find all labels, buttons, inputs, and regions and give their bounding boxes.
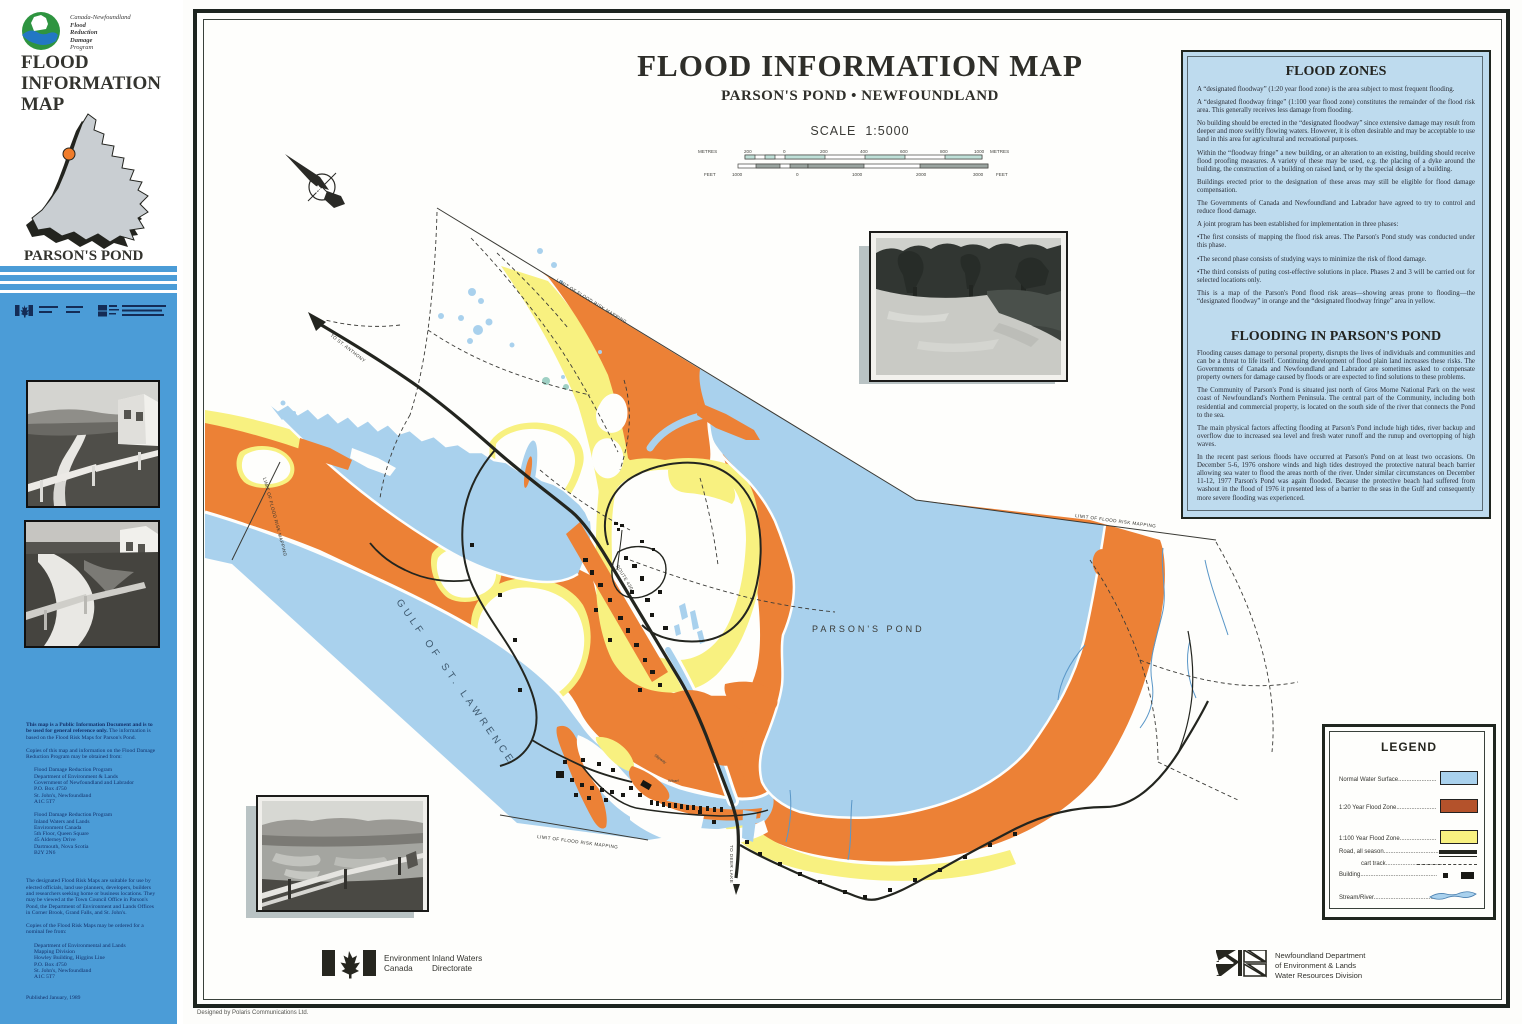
svg-text:Environment: Environment [384,954,431,963]
svg-text:FEET: FEET [704,172,716,177]
svg-text:1000: 1000 [732,172,743,177]
svg-text:of Environment & Lands: of Environment & Lands [1275,961,1356,970]
svg-text:1000: 1000 [852,172,863,177]
svg-text:Newfoundland Department: Newfoundland Department [1275,951,1366,960]
svg-text:TO DEER LAKE: TO DEER LAKE [729,845,734,883]
svg-text:Canada: Canada [384,964,413,973]
svg-text:Inland Waters: Inland Waters [432,954,482,963]
svg-text:200: 200 [820,149,828,154]
svg-text:200: 200 [744,149,752,154]
svg-text:800: 800 [940,149,948,154]
svg-text:METRES: METRES [698,149,717,154]
svg-text:LIMIT OF FLOOD RISK MAPPING: LIMIT OF FLOOD RISK MAPPING [537,834,619,850]
svg-text:3000: 3000 [973,172,984,177]
svg-text:400: 400 [860,149,868,154]
svg-text:600: 600 [900,149,908,154]
svg-text:FEET: FEET [996,172,1008,177]
svg-text:2000: 2000 [916,172,927,177]
svg-text:0: 0 [783,149,786,154]
svg-text:METRES: METRES [990,149,1009,154]
svg-text:PARSON'S POND: PARSON'S POND [812,624,925,634]
svg-text:Directorate: Directorate [432,964,472,973]
svg-text:0: 0 [796,172,799,177]
svg-text:Water Resources Division: Water Resources Division [1275,971,1362,980]
svg-text:1000: 1000 [974,149,985,154]
svg-text:Wharf: Wharf [668,778,680,783]
